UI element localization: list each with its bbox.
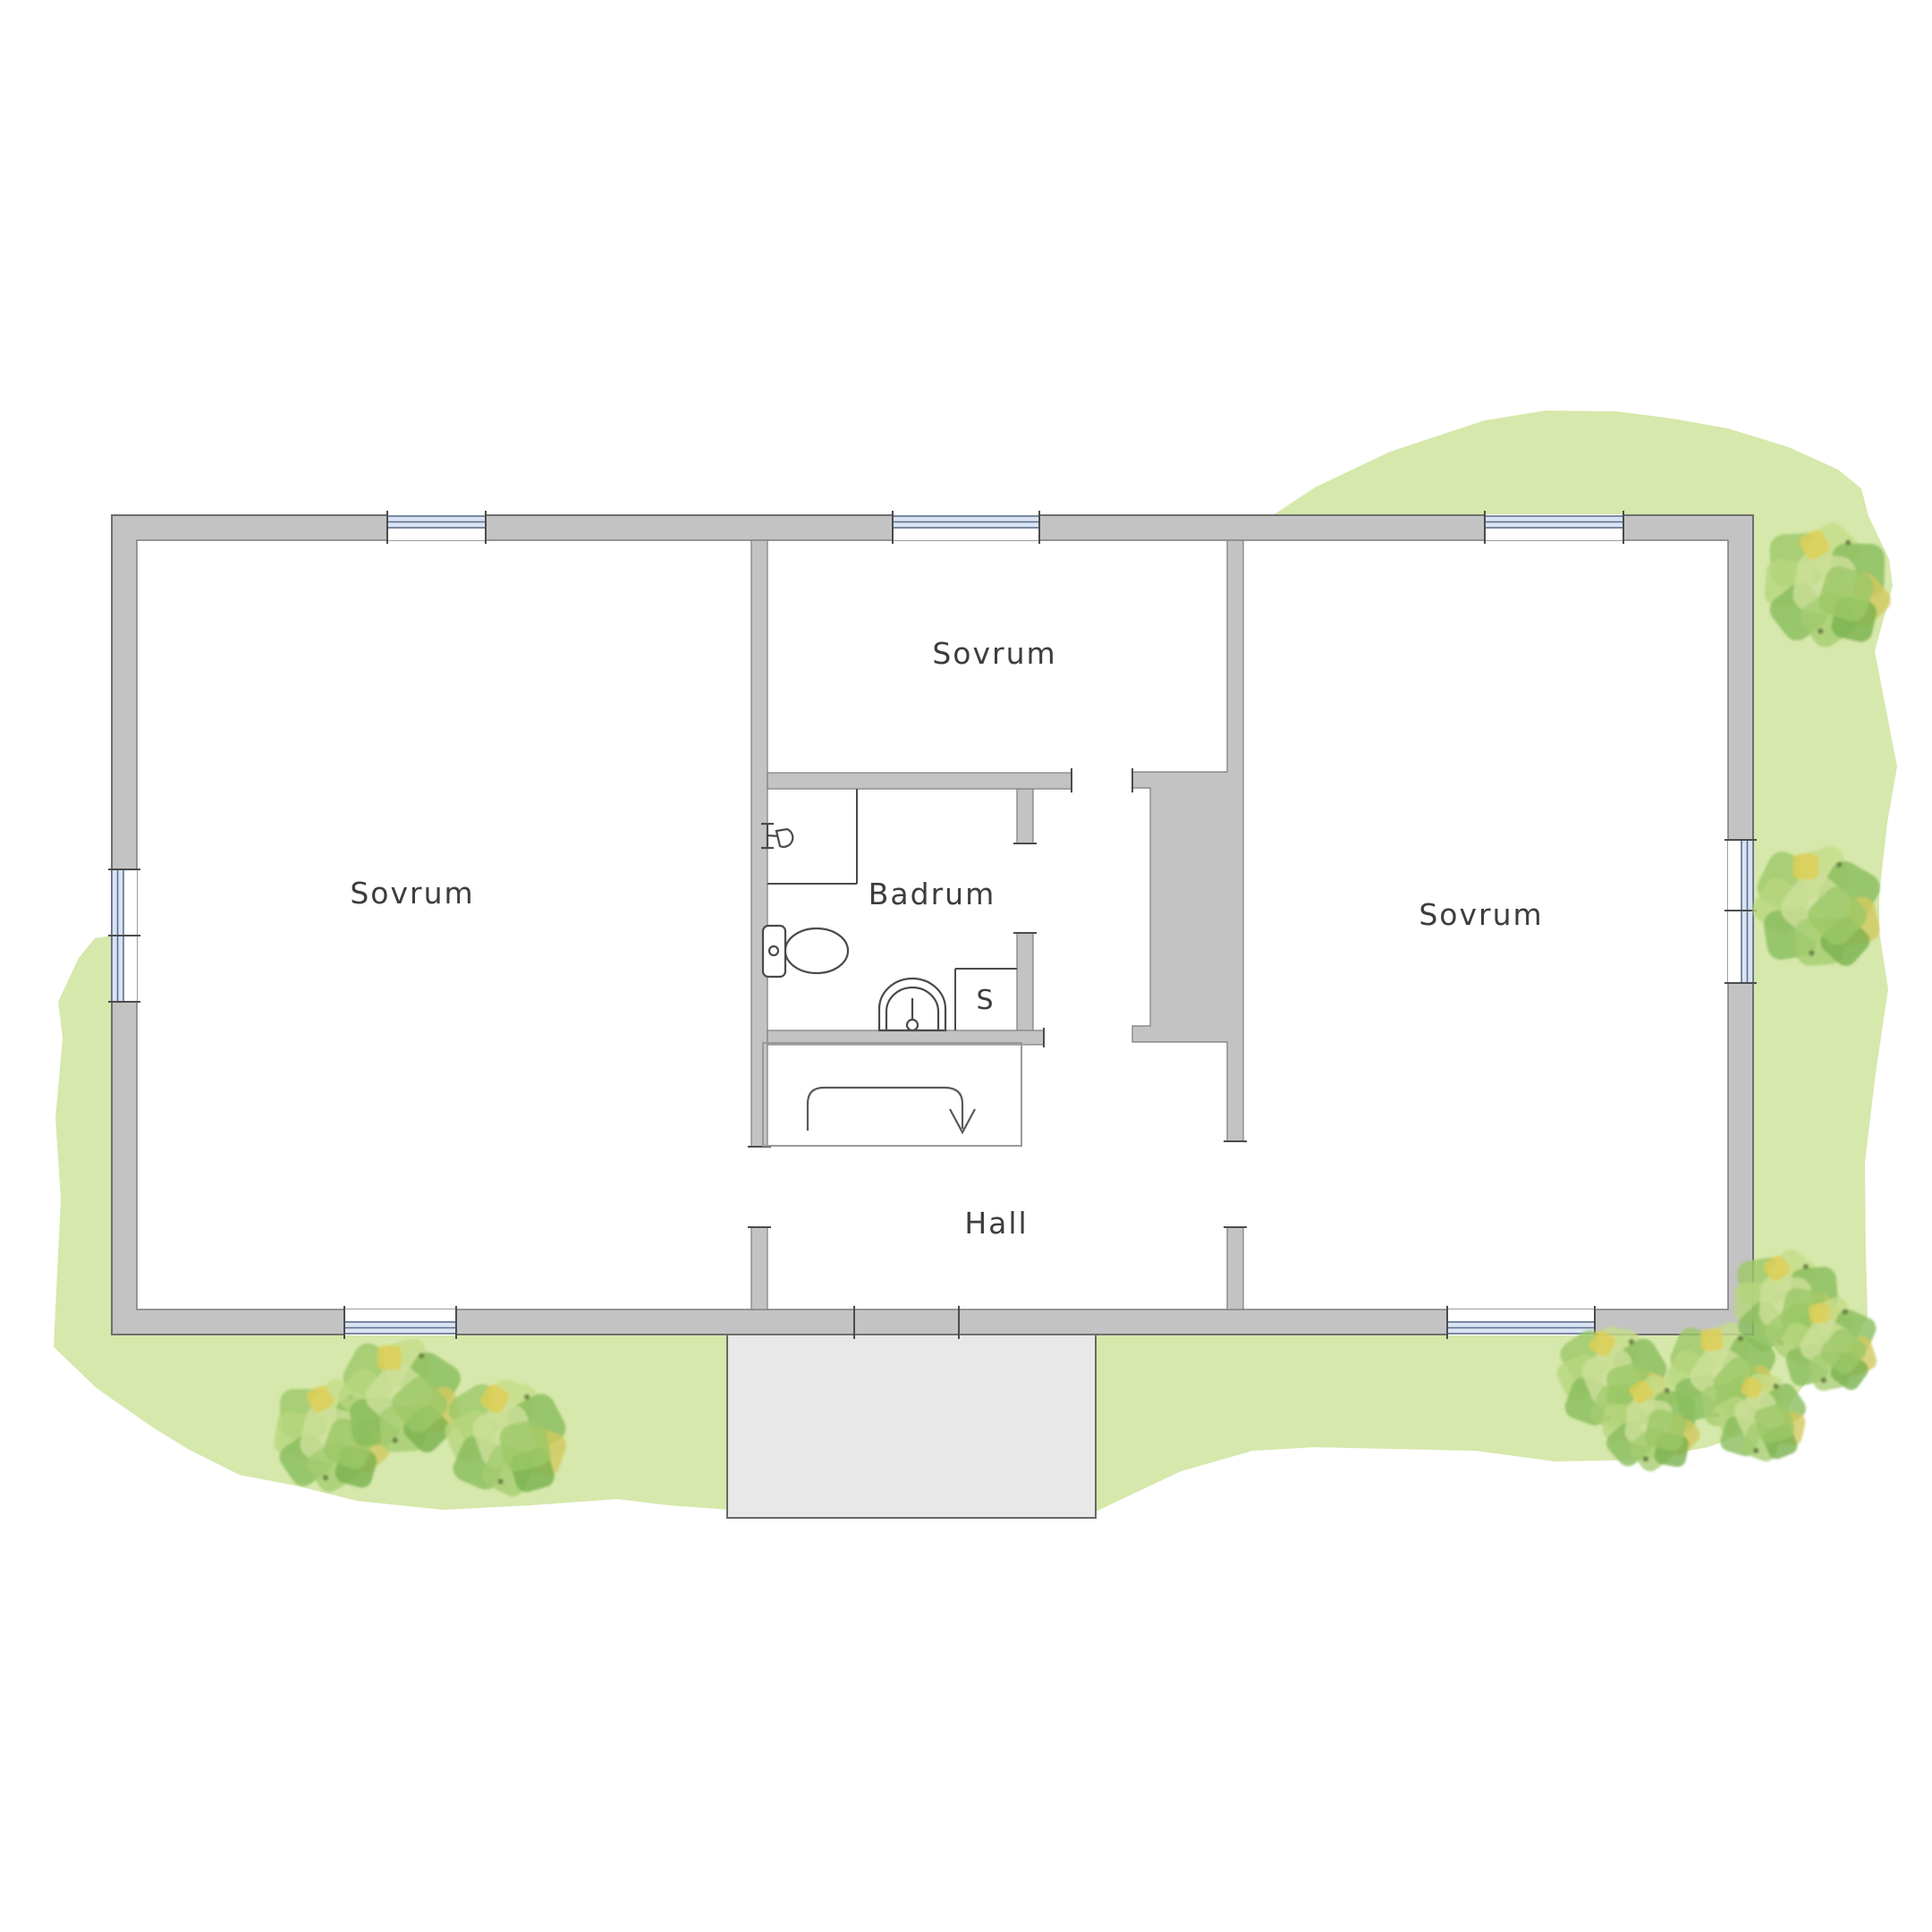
wall-bathroom-right-upper <box>1017 789 1033 843</box>
window-bottom-right-bedroom <box>1447 1306 1595 1339</box>
window-left-wall <box>108 869 140 1002</box>
wall-left-divider-stub <box>751 1227 767 1309</box>
sink-icon <box>879 979 945 1030</box>
room-label-bathroom: Badrum <box>869 877 996 911</box>
room-label-bedroom-middle: Sovrum <box>932 636 1056 671</box>
room-label-hall: Hall <box>964 1206 1028 1241</box>
room-label-bedroom-left: Sovrum <box>350 876 474 911</box>
window-top-right-bedroom <box>1485 511 1623 544</box>
toilet-icon <box>763 926 848 977</box>
wall-bathroom-right-lower <box>1017 933 1033 1031</box>
window-top-middle-bedroom <box>893 511 1039 544</box>
room-label-bedroom-right: Sovrum <box>1419 897 1543 932</box>
window-right-wall <box>1724 840 1757 983</box>
window-top-left-bedroom <box>387 511 486 544</box>
entrance-porch <box>727 1329 1096 1518</box>
wall-right-divider-stub <box>1227 1227 1243 1309</box>
window-bottom-left-bedroom <box>344 1306 456 1339</box>
wall-left-divider <box>751 540 767 1147</box>
wall-midbedroom-bottom <box>767 773 1072 789</box>
floor-plan-page: Sovrum Sovrum Sovrum Badrum Hall S <box>0 0 1932 1932</box>
floor-plan-canvas: Sovrum Sovrum Sovrum Badrum Hall S <box>0 0 1932 1932</box>
room-label-closet: S <box>976 985 995 1016</box>
